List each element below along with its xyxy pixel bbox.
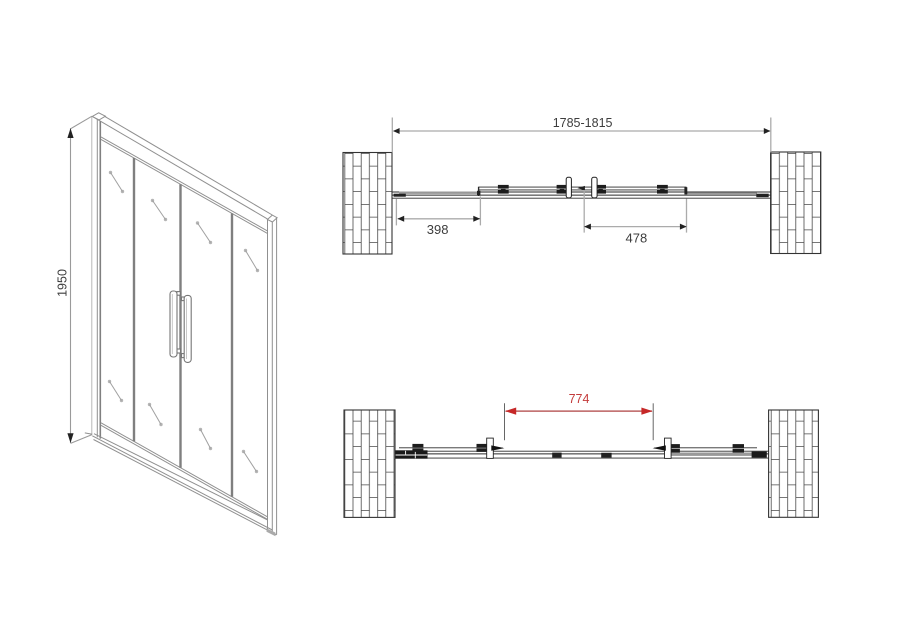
svg-text:1950: 1950	[56, 269, 70, 297]
svg-text:478: 478	[626, 231, 648, 246]
svg-text:774: 774	[569, 392, 590, 406]
svg-text:1785-1815: 1785-1815	[553, 116, 613, 130]
svg-text:398: 398	[427, 222, 449, 237]
